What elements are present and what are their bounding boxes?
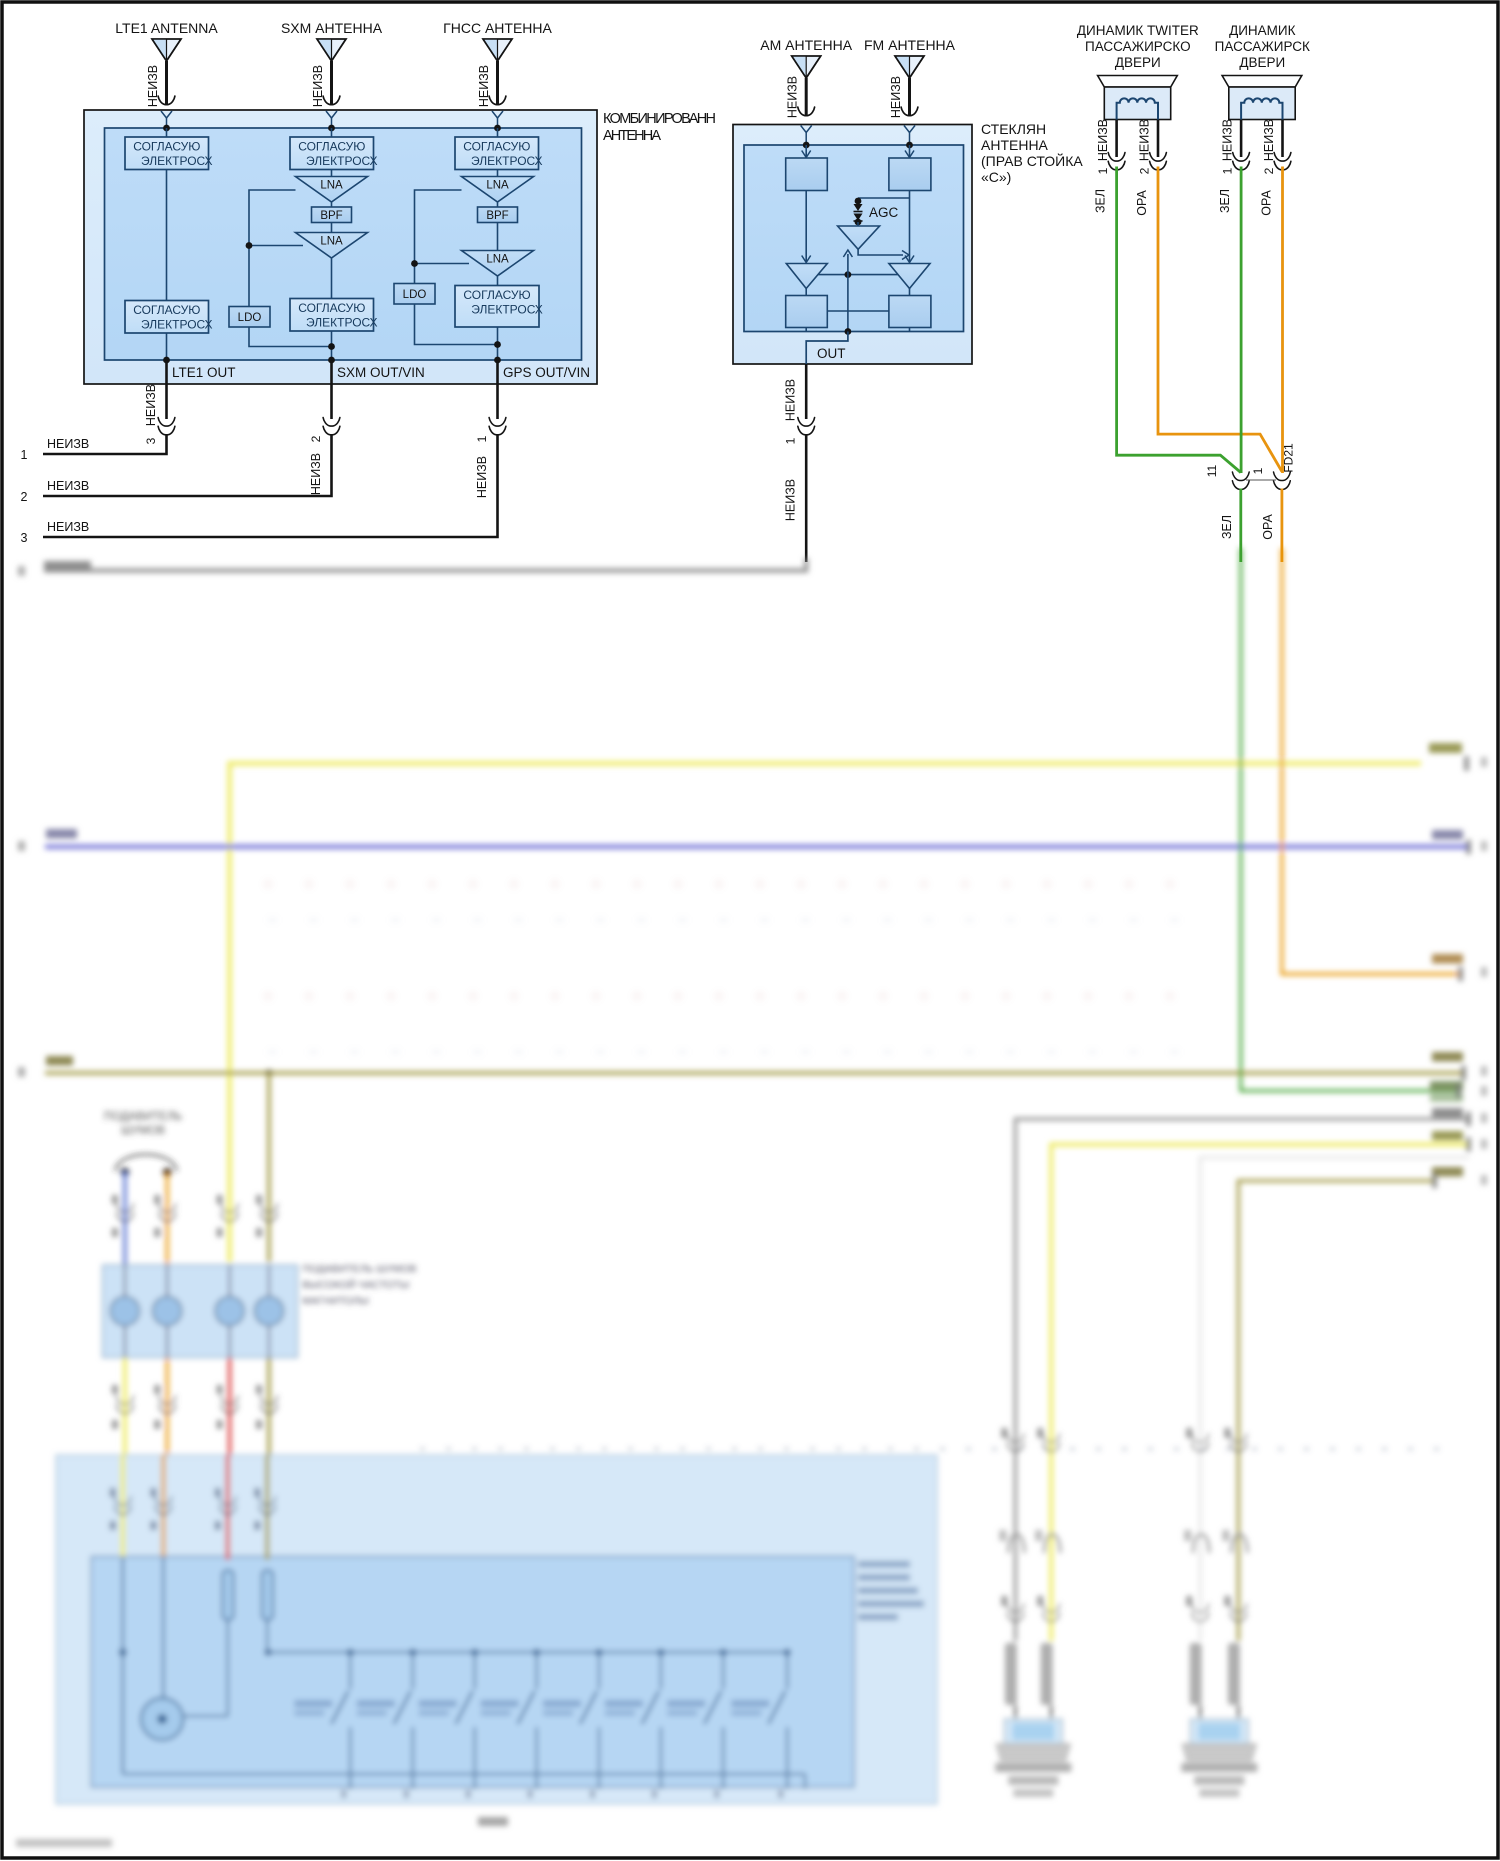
svg-text:GPS OUT/VIN: GPS OUT/VIN [503,365,590,380]
svg-text:LNA: LNA [486,180,509,192]
svg-text:1: 1 [475,435,489,442]
svg-text:НЕИЗВ: НЕИЗВ [784,479,798,521]
svg-text:НЕИЗВ: НЕИЗВ [786,76,800,118]
svg-text:КОМБИНИРОВАНН: КОМБИНИРОВАНН [603,111,716,127]
svg-text:ЗЕЛ: ЗЕЛ [1218,189,1232,213]
svg-text:АМ АНТЕННА: АМ АНТЕННА [760,37,852,53]
svg-text:НЕИЗВ: НЕИЗВ [475,456,489,498]
svg-text:LNA: LNA [320,236,343,248]
svg-text:НЕИЗВ: НЕИЗВ [47,479,89,493]
svg-text:1: 1 [1221,167,1235,174]
svg-text:НЕИЗВ: НЕИЗВ [311,65,325,107]
svg-text:ДИНАМИК: ДИНАМИК [1229,23,1296,38]
svg-text:ЭЛЕКТРОСХ: ЭЛЕКТРОСХ [471,154,543,168]
svg-text:СОГЛАСУЮ: СОГЛАСУЮ [133,140,200,154]
svg-text:1: 1 [784,437,798,444]
svg-text:BPF: BPF [486,210,508,222]
svg-text:(ПРАВ СТОЙКА: (ПРАВ СТОЙКА [981,152,1083,169]
svg-text:3: 3 [21,531,28,545]
svg-text:НЕИЗВ: НЕИЗВ [309,453,323,495]
svg-text:НЕИЗВ: НЕИЗВ [784,379,798,421]
svg-text:SXM OUT/VIN: SXM OUT/VIN [337,365,425,380]
svg-text:2: 2 [21,490,28,504]
svg-text:НЕИЗВ: НЕИЗВ [1221,119,1235,161]
svg-text:ЭЛЕКТРОСХ: ЭЛЕКТРОСХ [471,303,543,317]
svg-text:ДВЕРИ: ДВЕРИ [1239,55,1285,70]
svg-text:FM АНТЕННА: FM АНТЕННА [864,37,956,53]
svg-text:LTE1 OUT: LTE1 OUT [172,365,236,380]
svg-text:АНТЕННА: АНТЕННА [603,128,661,144]
svg-text:СТЕКЛЯН: СТЕКЛЯН [981,121,1046,137]
svg-text:СОГЛАСУЮ: СОГЛАСУЮ [298,140,365,154]
svg-text:ДВЕРИ: ДВЕРИ [1115,55,1161,70]
svg-text:НЕИЗВ: НЕИЗВ [144,384,158,426]
svg-text:LTE1 ANTENNA: LTE1 ANTENNA [115,20,218,36]
svg-text:LNA: LNA [486,254,509,266]
svg-text:2: 2 [1138,167,1152,174]
svg-text:ПАССАЖИРСК: ПАССАЖИРСК [1215,39,1310,54]
svg-text:СОГЛАСУЮ: СОГЛАСУЮ [463,140,530,154]
svg-text:ШУМОВ: ШУМОВ [121,1125,165,1137]
svg-text:«С»): «С») [981,169,1011,185]
svg-text:НЕИЗВ: НЕИЗВ [47,437,89,451]
svg-text:OUT: OUT [817,346,846,361]
svg-text:11: 11 [1205,464,1219,477]
svg-text:СОГЛАСУЮ: СОГЛАСУЮ [463,288,530,302]
svg-text:ПОДАВИТЕЛЬ: ПОДАВИТЕЛЬ [104,1111,182,1123]
svg-text:ЭЛЕКТРОСХ: ЭЛЕКТРОСХ [141,154,213,168]
svg-text:НЕИЗВ: НЕИЗВ [1262,119,1276,161]
svg-text:ГНСС АНТЕННА: ГНСС АНТЕННА [443,20,552,36]
svg-text:ПОДАВИТЕЛЬ ШУМОВ: ПОДАВИТЕЛЬ ШУМОВ [302,1263,416,1275]
svg-text:ЭЛЕКТРОСХ: ЭЛЕКТРОСХ [306,316,378,330]
svg-text:ЭЛЕКТРОСХ: ЭЛЕКТРОСХ [141,318,213,332]
svg-text:НЕИЗВ: НЕИЗВ [889,76,903,118]
svg-text:СОГЛАСУЮ: СОГЛАСУЮ [133,303,200,317]
svg-text:SXM АНТЕННА: SXM АНТЕННА [281,20,383,36]
svg-text:LDO: LDO [238,312,262,324]
svg-text:1: 1 [1251,467,1265,474]
svg-text:ЗЕЛ: ЗЕЛ [1220,515,1234,539]
svg-text:ОРА: ОРА [1260,190,1274,216]
svg-text:ОРА: ОРА [1135,190,1149,216]
svg-text:1: 1 [21,448,28,462]
svg-text:1: 1 [1096,167,1110,174]
svg-text:FD21: FD21 [1282,443,1296,473]
svg-text:АНТЕННА: АНТЕННА [981,137,1049,153]
svg-text:ДИНАМИК TWITER: ДИНАМИК TWITER [1077,23,1199,38]
svg-text:НЕИЗВ: НЕИЗВ [477,65,491,107]
svg-text:НЕИЗВ: НЕИЗВ [47,520,89,534]
svg-text:СОГЛАСУЮ: СОГЛАСУЮ [298,301,365,315]
svg-text:ПАССАЖИРСКО: ПАССАЖИРСКО [1085,39,1191,54]
svg-text:LNA: LNA [320,180,343,192]
svg-text:ОРА: ОРА [1261,514,1275,540]
svg-text:НЕИЗВ: НЕИЗВ [146,65,160,107]
svg-text:LDO: LDO [403,289,427,301]
svg-text:НЕИЗВ: НЕИЗВ [1096,119,1110,161]
svg-text:ЭЛЕКТРОСХ: ЭЛЕКТРОСХ [306,154,378,168]
svg-text:ЗЕЛ: ЗЕЛ [1094,189,1108,213]
svg-text:ВЫСОКОЙ ЧАСТОТЫ: ВЫСОКОЙ ЧАСТОТЫ [302,1278,409,1291]
svg-text:2: 2 [309,435,323,442]
svg-text:МАГНИТОЛЫ: МАГНИТОЛЫ [302,1295,369,1307]
svg-text:AGC: AGC [869,205,899,220]
svg-text:НЕИЗВ: НЕИЗВ [1138,119,1152,161]
svg-text:3: 3 [144,437,158,444]
svg-text:2: 2 [1262,167,1276,174]
svg-text:BPF: BPF [320,210,342,222]
